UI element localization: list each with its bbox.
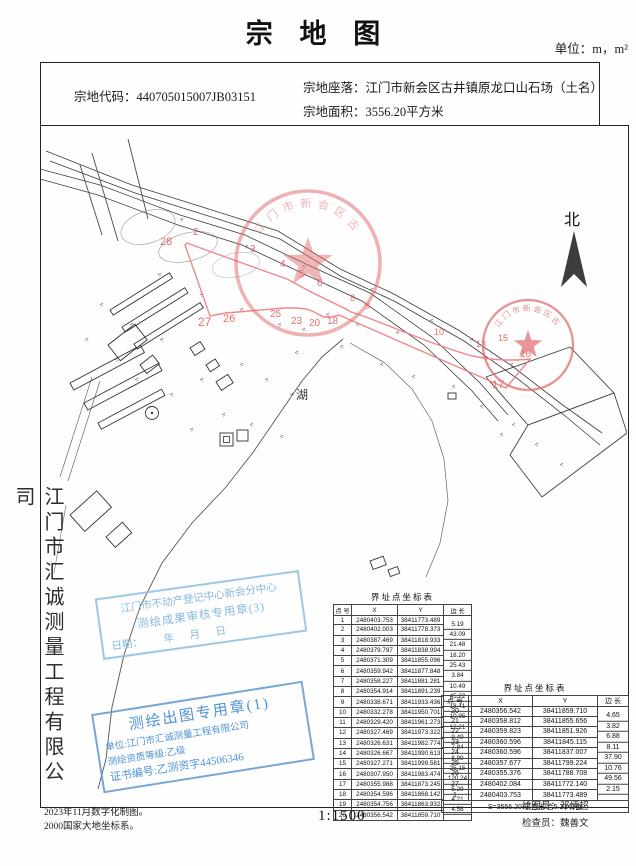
parcel-area: 宗地面积：3556.20平方米 [303,101,444,120]
unit-label: 单位：m，m² [480,38,628,57]
checker-line: 检查员：魏善文 [522,816,589,833]
svg-text:6: 6 [317,278,323,289]
boundary-point-table-2: 界址点坐标表点 号XY边 长202480356.54238411859.7102… [441,682,629,813]
svg-text:23: 23 [291,316,303,327]
svg-text:28: 28 [160,236,172,248]
svg-text:9: 9 [365,301,370,311]
parcel-map-document: 宗 地 图 单位：m，m² 宗地代码：440705015007JB03151 宗… [0,0,636,866]
svg-text:3: 3 [250,244,256,255]
svg-text:15: 15 [498,333,508,343]
svg-text:26: 26 [223,313,235,325]
svg-text:2: 2 [193,227,199,238]
parcel-code: 宗地代码：440705015007JB03151 [74,86,256,105]
svg-text:17: 17 [492,379,504,391]
svg-text:湖: 湖 [296,387,308,402]
svg-text:北: 北 [564,211,580,229]
note-survey-date: 2023年11月数字化制图。 [44,807,148,821]
parcel-location-label: 宗地座落： [303,81,366,95]
svg-text:25: 25 [270,309,282,320]
svg-text:4: 4 [280,259,286,270]
credits: 绘图员：邓炳超 检查员：魏善文 [522,799,589,833]
scale-label: 1:1500 [318,808,366,825]
svg-text:10: 10 [434,327,444,337]
parcel-location: 宗地座落：江门市新会区古井镇原龙口山石场（土名） [303,77,603,96]
svg-text:13: 13 [476,339,486,349]
note-datum: 2000国家大地坐标系。 [44,821,148,835]
parcel-location-value: 江门市新会区古井镇原龙口山石场（土名） [366,81,604,95]
svg-text:16: 16 [520,349,532,360]
parcel-area-value: 3556.20平方米 [366,105,444,119]
svg-text:18: 18 [327,316,339,327]
company-name-vertical: 江门市汇诚测量工程有限公司 [9,486,67,798]
drafter-line: 绘图员：邓炳超 [522,799,589,816]
parcel-code-value: 440705015007JB03151 [137,90,256,104]
svg-text:江门市新会区古井: 江门市新会区古井 [40,125,362,236]
parcel-area-label: 宗地面积： [303,105,366,119]
svg-text:27: 27 [198,315,212,329]
svg-text:江门市新会区古井: 江门市新会区古井 [40,125,562,329]
parcel-code-label: 宗地代码： [74,90,137,104]
svg-text:20: 20 [309,318,321,329]
svg-text:8: 8 [350,293,355,303]
map-notes: 2023年11月数字化制图。 2000国家大地坐标系。 [44,807,148,834]
svg-text:5: 5 [299,269,305,280]
